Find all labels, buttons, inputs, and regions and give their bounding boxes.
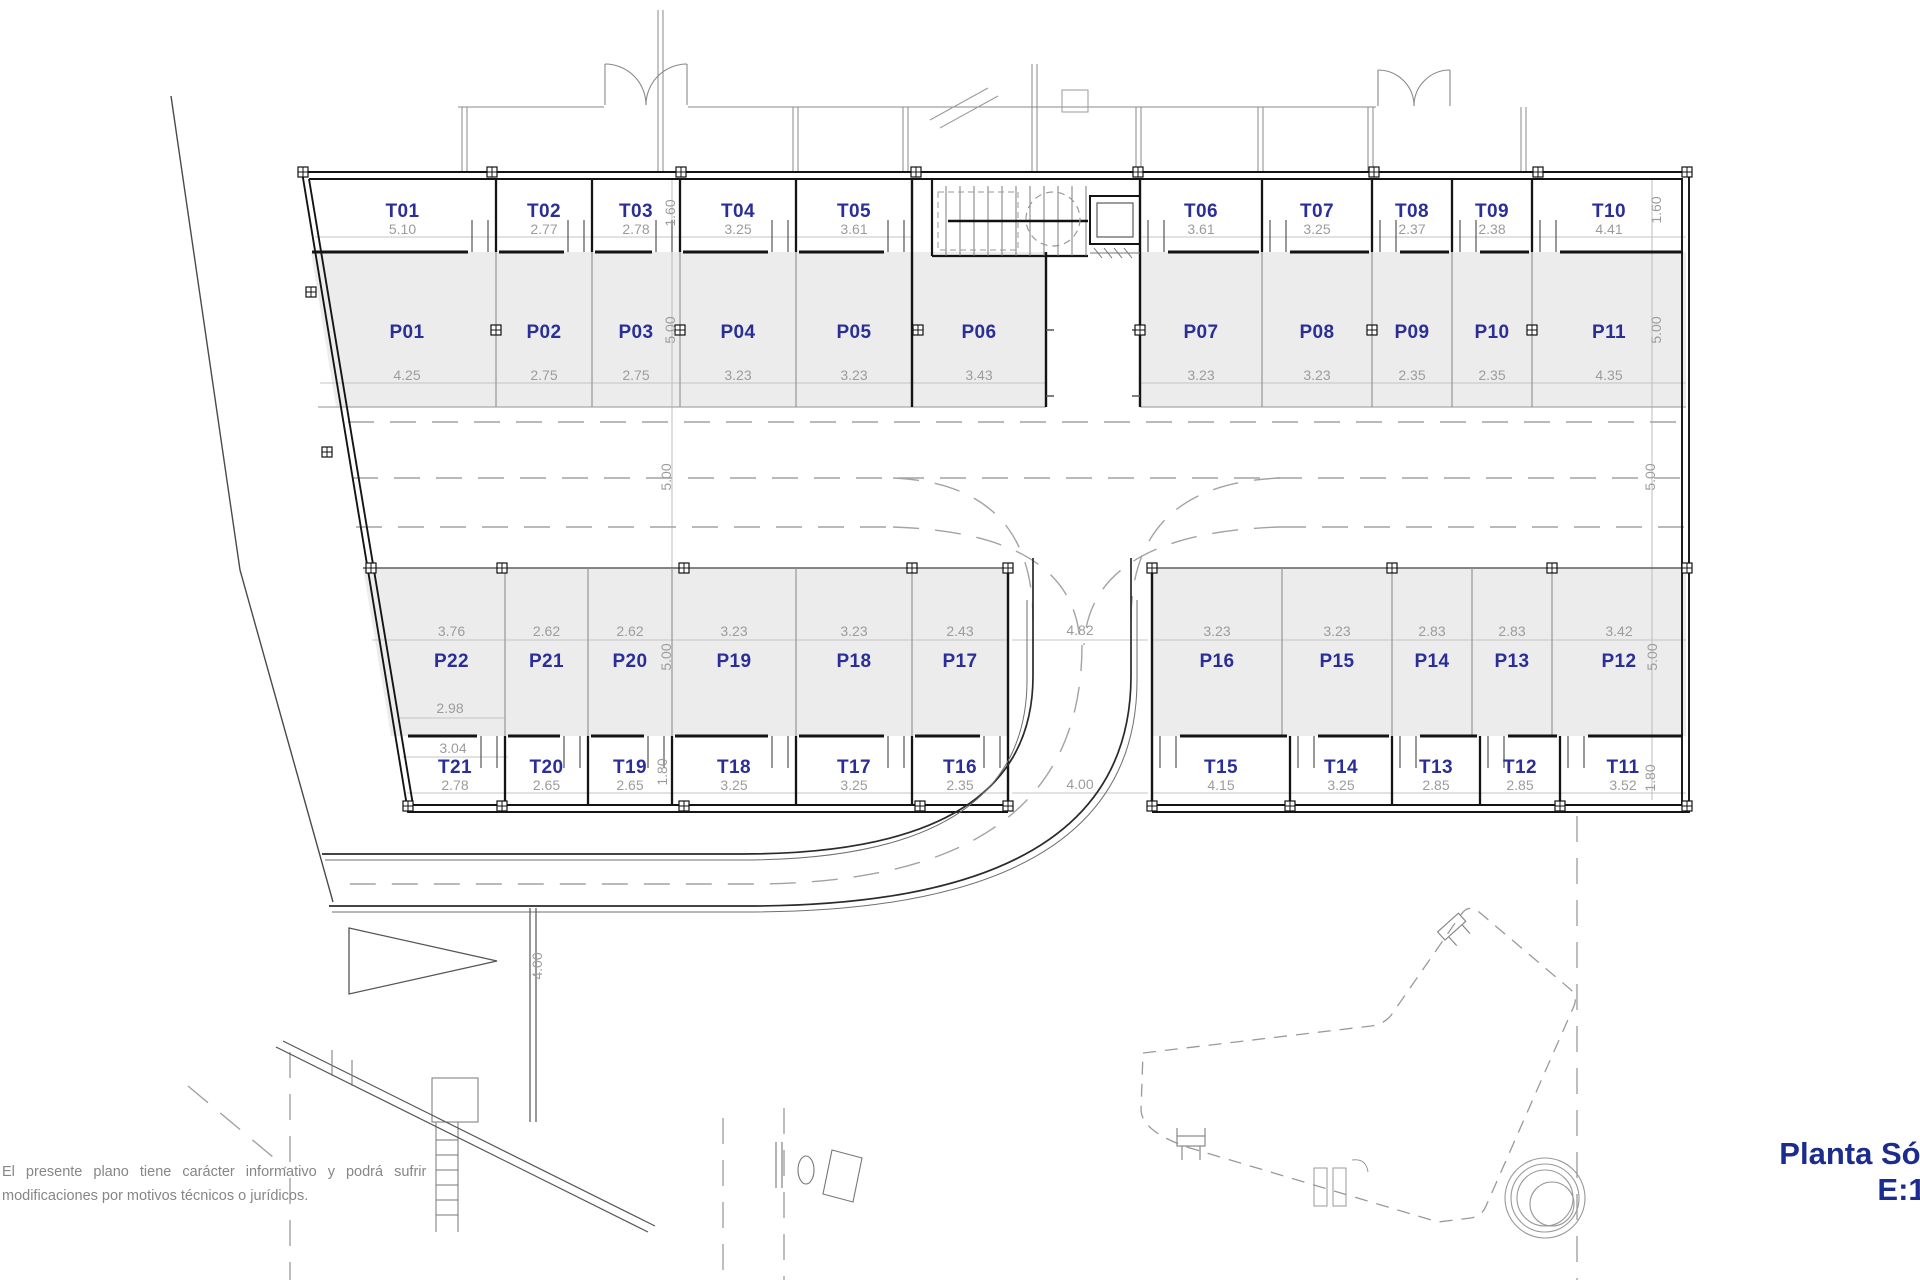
stall-dim: 2.35 xyxy=(1444,367,1540,383)
stall-dim: 3.25 xyxy=(806,777,902,793)
small-quad-icon xyxy=(823,1150,862,1202)
stall-dim: 2.75 xyxy=(588,367,684,383)
column-marker xyxy=(487,167,497,177)
stall-label: T07 xyxy=(1269,201,1365,223)
plan-title: Planta Sótano xyxy=(1736,1136,1920,1172)
pool-outline-dashed xyxy=(1141,908,1575,1222)
column-marker xyxy=(322,447,332,457)
stall-label: P02 xyxy=(496,322,592,344)
stall-dim: 2.35 xyxy=(912,777,1008,793)
bench-icon xyxy=(1438,913,1474,949)
stall-label: T21 xyxy=(407,757,503,779)
bench-icon xyxy=(1177,1128,1205,1160)
column-marker xyxy=(306,287,316,297)
stall-dim: 3.23 xyxy=(1153,367,1249,383)
stall-dim: 2.85 xyxy=(1472,777,1568,793)
extra-dimension: 5.00 xyxy=(658,447,674,507)
stall-dim: 4.15 xyxy=(1173,777,1269,793)
column-marker xyxy=(679,563,689,573)
small-oval-icon xyxy=(798,1156,814,1184)
disclaimer-note: El presente plano tiene carácter informa… xyxy=(2,1160,472,1208)
column-marker xyxy=(1003,563,1013,573)
floor-plan-page: T015.10T022.77T032.78T043.25T053.61T063.… xyxy=(0,0,1920,1280)
stall-label: P10 xyxy=(1444,322,1540,344)
extra-dimension: 1.80 xyxy=(1642,748,1658,808)
stall-label: T09 xyxy=(1444,201,1540,223)
column-marker xyxy=(911,167,921,177)
stall-label: T20 xyxy=(499,757,595,779)
extra-dimension: 1.80 xyxy=(654,742,670,802)
stall-dim: 2.38 xyxy=(1444,221,1540,237)
stall-dim: 2.77 xyxy=(496,221,592,237)
stall-dim: 2.75 xyxy=(496,367,592,383)
stall-dim: 3.61 xyxy=(1153,221,1249,237)
column-marker xyxy=(1003,801,1013,811)
column-marker xyxy=(497,563,507,573)
stall-label: T06 xyxy=(1153,201,1249,223)
stall-dim: 2.62 xyxy=(499,623,595,639)
extra-dimension: 4.00 xyxy=(1032,776,1128,792)
column-marker xyxy=(497,801,507,811)
disclaimer-line2: modificaciones por motivos técnicos o ju… xyxy=(2,1184,472,1208)
column-marker xyxy=(1547,563,1557,573)
stall-dim: 3.25 xyxy=(1269,221,1365,237)
extra-dimension: 5.00 xyxy=(1644,627,1660,687)
column-marker xyxy=(1682,801,1692,811)
disclaimer-line1: El presente plano tiene carácter informa… xyxy=(2,1160,472,1184)
column-marker xyxy=(1147,801,1157,811)
stall-dim: 2.78 xyxy=(407,777,503,793)
stall-label: P13 xyxy=(1464,651,1560,673)
stall-label: P01 xyxy=(359,322,455,344)
column-marker xyxy=(913,325,923,335)
column-marker xyxy=(915,801,925,811)
plan-scale: E:1/150 xyxy=(1736,1172,1920,1208)
column-marker xyxy=(1555,801,1565,811)
stall-dim: 3.23 xyxy=(1269,367,1365,383)
pool-area xyxy=(1141,908,1585,1238)
column-marker xyxy=(1533,167,1543,177)
stall-dim: 3.23 xyxy=(806,623,902,639)
stall-label: P11 xyxy=(1561,322,1657,344)
stall-label: P16 xyxy=(1169,651,1265,673)
pool-steps-icon xyxy=(1333,1168,1346,1206)
stall-dim: 3.43 xyxy=(931,367,1027,383)
column-marker xyxy=(1682,167,1692,177)
stall-label: T12 xyxy=(1472,757,1568,779)
extra-dimension: 5.00 xyxy=(662,300,678,360)
spa-circles-icon xyxy=(1505,1158,1585,1238)
extra-dimension: 4.00 xyxy=(529,936,545,996)
column-marker xyxy=(1369,167,1379,177)
stall-dim: 4.25 xyxy=(359,367,455,383)
stall-label: T01 xyxy=(355,201,451,223)
extra-dimension: 2.98 xyxy=(402,700,498,716)
stall-label: T02 xyxy=(496,201,592,223)
stall-dim: 5.10 xyxy=(355,221,451,237)
stall-label: T10 xyxy=(1561,201,1657,223)
stall-label: P08 xyxy=(1269,322,1365,344)
stall-dim: 3.23 xyxy=(806,367,902,383)
stall-dim: 2.43 xyxy=(912,623,1008,639)
stall-dim: 3.25 xyxy=(1293,777,1389,793)
column-marker xyxy=(1387,563,1397,573)
column-marker xyxy=(679,801,689,811)
floor-plan-drawing xyxy=(0,0,1920,1280)
extra-dimension: 5.00 xyxy=(658,627,674,687)
elevator-car xyxy=(1097,203,1133,237)
stall-dim: 2.65 xyxy=(499,777,595,793)
stall-label: P17 xyxy=(912,651,1008,673)
stall-label: P15 xyxy=(1289,651,1385,673)
stall-label: P18 xyxy=(806,651,902,673)
stall-label: P06 xyxy=(931,322,1027,344)
stall-dim: 4.41 xyxy=(1561,221,1657,237)
title-block: Planta Sótano E:1/150 xyxy=(1736,1136,1920,1208)
extra-dimension: 1.60 xyxy=(662,183,678,243)
upper-wall-stubs xyxy=(462,10,1526,172)
stall-dim: 2.83 xyxy=(1464,623,1560,639)
extra-dimension: 5.00 xyxy=(1648,300,1664,360)
ramp-arrow-icon xyxy=(349,928,497,994)
small-bar-icon xyxy=(776,1142,782,1188)
column-marker xyxy=(1285,801,1295,811)
stall-dim: 3.61 xyxy=(806,221,902,237)
column-marker xyxy=(403,801,413,811)
stall-label: T14 xyxy=(1293,757,1389,779)
door-swing-icon xyxy=(605,64,1450,106)
stall-dim: 3.76 xyxy=(404,623,500,639)
stall-label: P04 xyxy=(690,322,786,344)
column-marker xyxy=(1682,563,1692,573)
stall-label: T15 xyxy=(1173,757,1269,779)
column-marker xyxy=(1133,167,1143,177)
drive-lane-dashes xyxy=(188,422,1686,1280)
stall-dim: 3.25 xyxy=(686,777,782,793)
stall-label: T04 xyxy=(690,201,786,223)
stall-label: T16 xyxy=(912,757,1008,779)
extra-dimension: 1.60 xyxy=(1648,180,1664,240)
stall-label: P22 xyxy=(404,651,500,673)
stall-dim: 2.85 xyxy=(1388,777,1484,793)
column-marker xyxy=(676,167,686,177)
extra-dimension: 5.00 xyxy=(1642,447,1658,507)
extra-dimension: 4.82 xyxy=(1032,622,1128,638)
column-marker xyxy=(907,563,917,573)
stall-label: P21 xyxy=(499,651,595,673)
column-marker xyxy=(1135,325,1145,335)
stall-dim: 3.25 xyxy=(690,221,786,237)
column-marker xyxy=(366,563,376,573)
stall-label: T13 xyxy=(1388,757,1484,779)
stall-dim: 3.23 xyxy=(1169,623,1265,639)
extra-dimension: 3.04 xyxy=(405,740,501,756)
stall-dim: 3.23 xyxy=(690,367,786,383)
column-marker xyxy=(1147,563,1157,573)
stall-label: T05 xyxy=(806,201,902,223)
stall-label: T18 xyxy=(686,757,782,779)
stall-label: P07 xyxy=(1153,322,1249,344)
stall-dim: 3.23 xyxy=(686,623,782,639)
stall-label: T17 xyxy=(806,757,902,779)
stall-label: P19 xyxy=(686,651,782,673)
stall-label: P05 xyxy=(806,322,902,344)
column-marker xyxy=(298,167,308,177)
stall-dim: 4.35 xyxy=(1561,367,1657,383)
stall-dim: 3.23 xyxy=(1289,623,1385,639)
